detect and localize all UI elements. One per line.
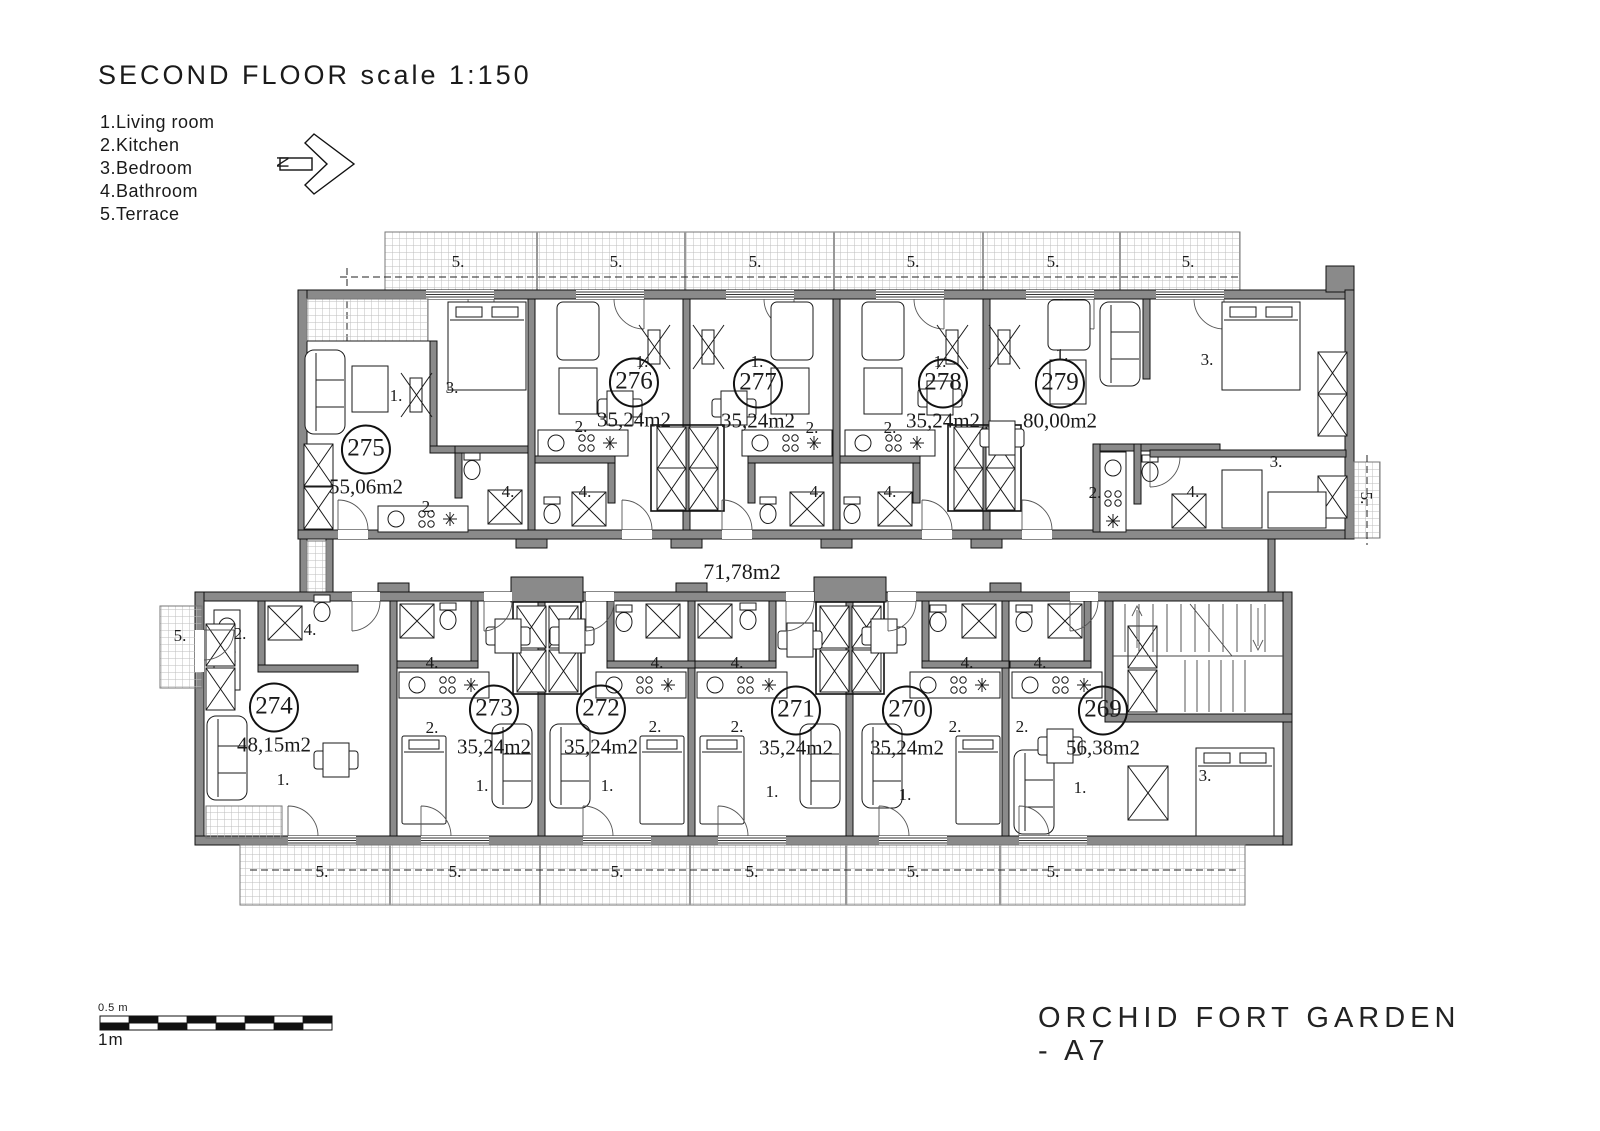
- room-annotation: 4.: [1034, 653, 1047, 673]
- apartment-label-276: 27635,24m2: [597, 358, 671, 433]
- room-annotation: 4.: [884, 482, 897, 502]
- apartment-label-270: 27035,24m2: [870, 686, 944, 761]
- room-annotation: 4.: [1187, 482, 1200, 502]
- room-annotation: 3.: [446, 378, 459, 398]
- apartment-area: 35,24m2: [597, 408, 671, 433]
- room-annotation: 1.: [751, 352, 764, 372]
- page-title: SECOND FLOOR scale 1:150: [98, 60, 532, 91]
- room-annotation: 2.: [884, 418, 897, 438]
- room-annotation: 5.: [746, 862, 759, 882]
- apartment-label-271: 27135,24m2: [759, 686, 833, 761]
- room-annotation: 1.: [390, 386, 403, 406]
- room-annotation: 5.: [449, 862, 462, 882]
- apartment-number: 274: [249, 683, 299, 733]
- room-annotation: 2.: [422, 497, 435, 517]
- room-annotation: 2.: [426, 718, 439, 738]
- room-annotation: 4.: [810, 482, 823, 502]
- apartment-label-274: 27448,15m2: [237, 683, 311, 758]
- room-annotation: 2.: [731, 717, 744, 737]
- room-annotation: 1.: [476, 776, 489, 796]
- apartment-area: 48,15m2: [237, 733, 311, 758]
- room-annotation: 1.: [899, 785, 912, 805]
- apartment-area: 55,06m2: [329, 475, 403, 500]
- room-annotation: 1.: [1056, 345, 1069, 365]
- room-annotation: 4.: [502, 482, 515, 502]
- apartment-area: 35,24m2: [564, 735, 638, 760]
- apartment-label-269: 26956,38m2: [1066, 686, 1140, 761]
- room-annotation: 2.: [649, 717, 662, 737]
- room-annotation: 4.: [731, 653, 744, 673]
- apartment-label-272: 27235,24m2: [564, 685, 638, 760]
- room-annotation: 5.: [907, 252, 920, 272]
- floor-plan-page: SECOND FLOOR scale 1:150 1.Living room 2…: [0, 0, 1600, 1131]
- legend-item-terrace: 5.Terrace: [100, 203, 215, 226]
- bottom-terrace: [240, 845, 1245, 905]
- room-annotation: 2.: [234, 624, 247, 644]
- room-annotation: 2.: [949, 717, 962, 737]
- legend-item-bedroom: 3.Bedroom: [100, 157, 215, 180]
- room-annotation: 5.: [611, 862, 624, 882]
- room-annotation: 5.: [1356, 492, 1376, 505]
- apartment-number: 272: [576, 685, 626, 735]
- north-letter: N: [272, 156, 292, 168]
- legend-item-bathroom: 4.Bathroom: [100, 180, 215, 203]
- legend-item-living-room: 1.Living room: [100, 111, 215, 134]
- room-annotation: 1.: [934, 352, 947, 372]
- apartment-area: 35,24m2: [759, 736, 833, 761]
- apartment-area: 35,24m2: [870, 736, 944, 761]
- room-annotation: 3.: [1199, 766, 1212, 786]
- corridor-area-label: 71,78m2: [703, 559, 781, 585]
- room-annotation: 5.: [907, 862, 920, 882]
- room-annotation: 5.: [1182, 252, 1195, 272]
- room-annotation: 1.: [1074, 778, 1087, 798]
- room-annotation: 5.: [610, 252, 623, 272]
- scale-bar-top-label: 0.5 m: [98, 1002, 348, 1014]
- room-annotation: 5.: [316, 862, 329, 882]
- apartment-area: 56,38m2: [1066, 736, 1140, 761]
- apartment-area: 80,00m2: [1023, 409, 1097, 434]
- apartment-area: 35,24m2: [457, 735, 531, 760]
- room-annotation: 1.: [601, 776, 614, 796]
- apartment-number: 275: [341, 425, 391, 475]
- room-annotation: 4.: [579, 482, 592, 502]
- room-annotation: 2.: [806, 418, 819, 438]
- room-annotation: 2.: [1089, 483, 1102, 503]
- room-annotation: 3.: [1270, 452, 1283, 472]
- room-annotation: 5.: [452, 252, 465, 272]
- apartment-number: 276: [609, 358, 659, 408]
- room-annotation: 2.: [1016, 717, 1029, 737]
- scale-bar-bottom-label: 1m: [98, 1030, 348, 1050]
- apartment-number: 279: [1035, 359, 1085, 409]
- apartment-label-275: 27555,06m2: [329, 425, 403, 500]
- project-title: ORCHID FORT GARDEN - A7: [1038, 1002, 1488, 1068]
- room-annotation: 4.: [426, 653, 439, 673]
- apartment-number: 269: [1078, 686, 1128, 736]
- apartment-number: 271: [771, 686, 821, 736]
- apartment-number: 273: [469, 685, 519, 735]
- apartment-number: 270: [882, 686, 932, 736]
- room-annotation: 5.: [1047, 862, 1060, 882]
- room-annotation: 1.: [766, 782, 779, 802]
- top-wing: [298, 266, 1380, 548]
- room-annotation: 3.: [1201, 350, 1214, 370]
- room-annotation: 5.: [1047, 252, 1060, 272]
- scale-bar-labels: 0.5 m 1m: [98, 1002, 348, 1050]
- room-annotation: 5.: [749, 252, 762, 272]
- room-annotation: 4.: [304, 620, 317, 640]
- floor-plan-drawing: [0, 0, 1600, 1131]
- room-annotation: 2.: [575, 417, 588, 437]
- apartment-label-279: 27980,00m2: [1023, 359, 1097, 434]
- room-annotation: 4.: [651, 653, 664, 673]
- room-annotation: 1.: [636, 352, 649, 372]
- room-annotation: 5.: [174, 626, 187, 646]
- apartment-area: 35,24m2: [721, 409, 795, 434]
- legend-item-kitchen: 2.Kitchen: [100, 134, 215, 157]
- apartment-area: 35,24m2: [906, 409, 980, 434]
- legend: 1.Living room 2.Kitchen 3.Bedroom 4.Bath…: [100, 111, 215, 226]
- apartment-label-273: 27335,24m2: [457, 685, 531, 760]
- room-annotation: 4.: [961, 653, 974, 673]
- room-annotation: 1.: [277, 770, 290, 790]
